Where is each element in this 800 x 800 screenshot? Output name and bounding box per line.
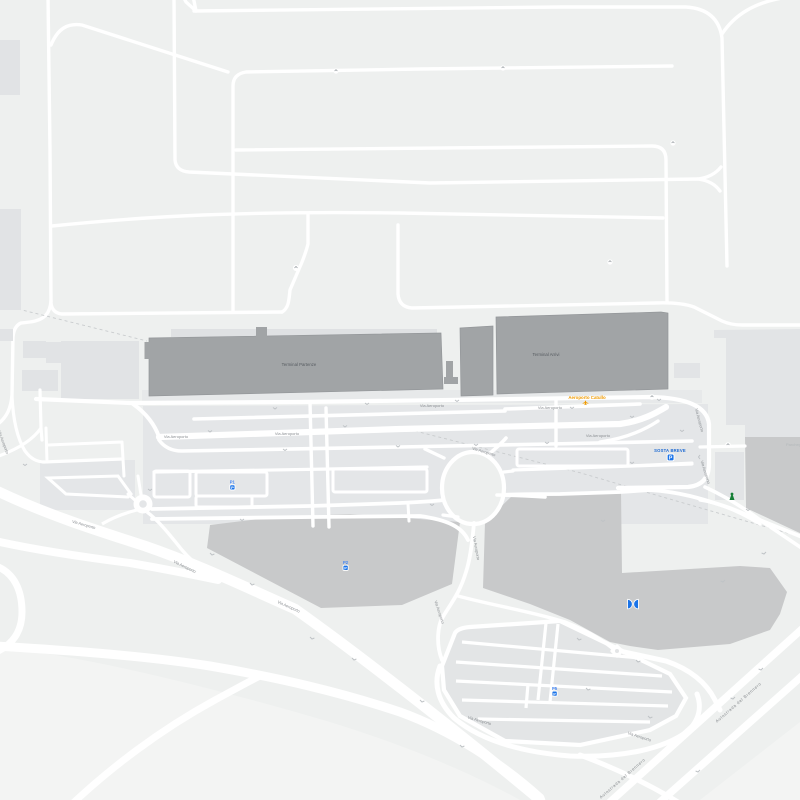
svg-text:SOSTA BREVE: SOSTA BREVE xyxy=(654,448,686,453)
svg-text:Terminal Partenze: Terminal Partenze xyxy=(282,362,317,367)
svg-text:Aeroporto Catullo: Aeroporto Catullo xyxy=(568,395,606,400)
svg-text:Via Aeroporto: Via Aeroporto xyxy=(420,403,445,408)
svg-text:P: P xyxy=(344,566,347,571)
svg-text:P5: P5 xyxy=(552,686,558,691)
svg-text:Via Aeroporto: Via Aeroporto xyxy=(164,434,189,439)
svg-text:Via Aeroporto: Via Aeroporto xyxy=(275,431,300,436)
svg-text:P: P xyxy=(231,485,234,490)
svg-text:Terminal Arrivi: Terminal Arrivi xyxy=(533,352,560,357)
svg-text:P: P xyxy=(553,691,556,696)
svg-text:Parcheggio: Parcheggio xyxy=(786,442,800,447)
svg-text:P: P xyxy=(669,456,673,462)
svg-text:Via Aeroporto: Via Aeroporto xyxy=(586,433,611,438)
svg-text:Via Aeroporto: Via Aeroporto xyxy=(538,405,563,410)
svg-text:P1: P1 xyxy=(230,479,236,484)
svg-text:P2: P2 xyxy=(343,560,349,565)
